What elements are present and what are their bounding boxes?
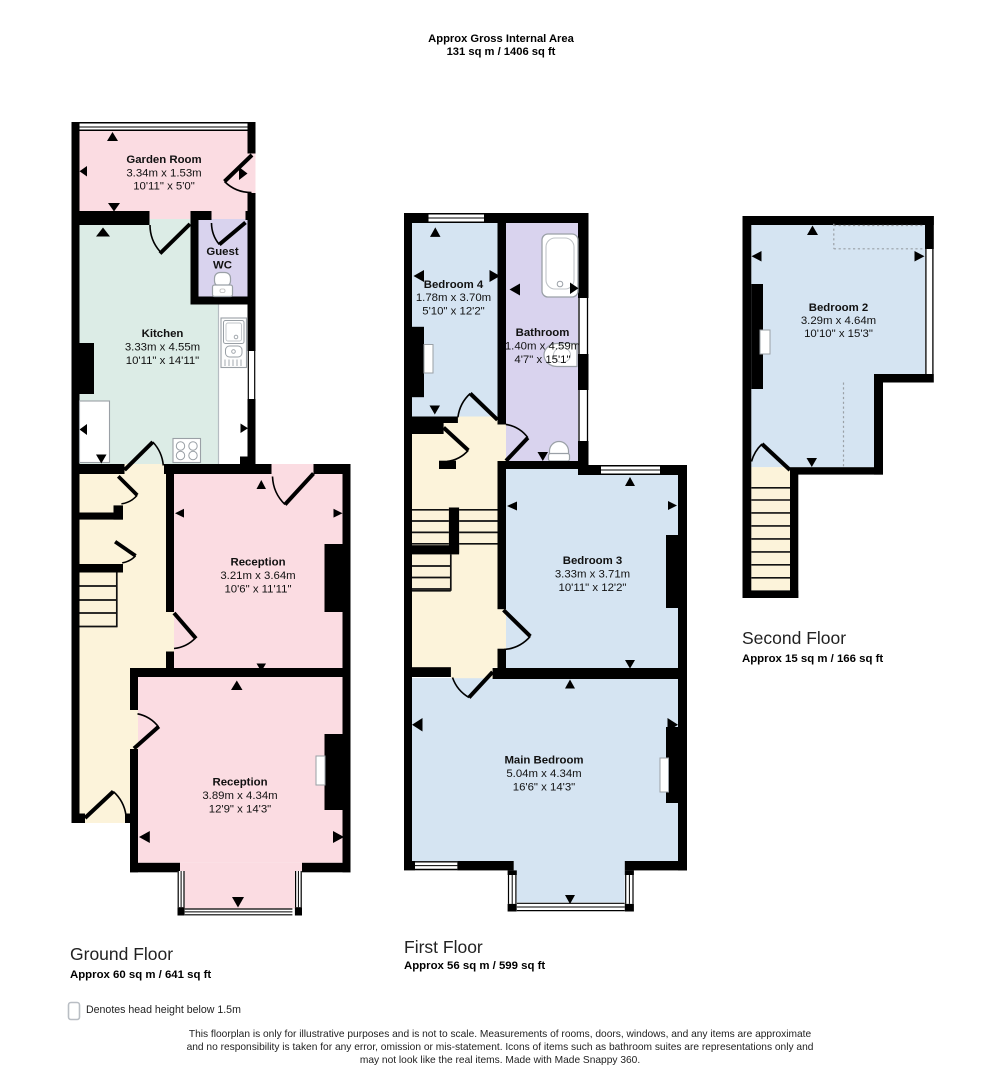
svg-text:Second Floor: Second Floor xyxy=(742,628,846,648)
svg-text:WC: WC xyxy=(213,260,232,272)
svg-text:12'9" x 14'3": 12'9" x 14'3" xyxy=(209,804,271,816)
svg-text:3.34m x 1.53m: 3.34m x 1.53m xyxy=(126,167,201,179)
svg-text:Reception: Reception xyxy=(230,557,285,569)
svg-text:5'10" x 12'2": 5'10" x 12'2" xyxy=(422,305,484,317)
svg-text:Garden Room: Garden Room xyxy=(126,154,201,166)
svg-text:Denotes head height below 1.5m: Denotes head height below 1.5m xyxy=(86,1004,241,1016)
svg-text:Bedroom 3: Bedroom 3 xyxy=(563,555,623,567)
svg-text:16'6" x 14'3": 16'6" x 14'3" xyxy=(513,782,575,794)
svg-text:Approx 15 sq m / 166 sq ft: Approx 15 sq m / 166 sq ft xyxy=(742,653,883,665)
svg-text:131 sq m / 1406 sq ft: 131 sq m / 1406 sq ft xyxy=(447,46,556,58)
svg-text:5.04m x 4.34m: 5.04m x 4.34m xyxy=(506,768,581,780)
svg-text:1.78m x 3.70m: 1.78m x 3.70m xyxy=(416,292,491,304)
svg-text:First Floor: First Floor xyxy=(404,937,483,957)
svg-text:Approx 60 sq m / 641 sq ft: Approx 60 sq m / 641 sq ft xyxy=(70,969,211,981)
svg-text:3.21m x 3.64m: 3.21m x 3.64m xyxy=(220,570,295,582)
svg-text:Approx 56 sq m / 599 sq ft: Approx 56 sq m / 599 sq ft xyxy=(404,960,545,972)
svg-text:Bathroom: Bathroom xyxy=(516,327,570,339)
svg-text:10'11" x 14'11": 10'11" x 14'11" xyxy=(126,355,199,367)
svg-text:1.40m x 4.59m: 1.40m x 4.59m xyxy=(505,341,580,353)
svg-text:10'11" x 5'0": 10'11" x 5'0" xyxy=(133,181,195,193)
svg-text:Approx Gross Internal Area: Approx Gross Internal Area xyxy=(428,33,574,45)
svg-text:3.33m x 4.55m: 3.33m x 4.55m xyxy=(125,342,200,354)
svg-text:Ground Floor: Ground Floor xyxy=(70,944,173,964)
svg-text:may not look like the real ite: may not look like the real items. Made w… xyxy=(360,1055,640,1066)
svg-text:Main Bedroom: Main Bedroom xyxy=(504,755,583,767)
svg-text:4'7" x 15'1": 4'7" x 15'1" xyxy=(514,354,570,366)
svg-text:10'10" x 15'3": 10'10" x 15'3" xyxy=(804,328,873,340)
svg-text:and no responsibility is taken: and no responsibility is taken for any e… xyxy=(187,1042,814,1053)
svg-text:Bedroom 2: Bedroom 2 xyxy=(809,302,869,314)
svg-text:3.89m x 4.34m: 3.89m x 4.34m xyxy=(202,790,277,802)
svg-text:Reception: Reception xyxy=(212,777,267,789)
svg-text:3.33m x 3.71m: 3.33m x 3.71m xyxy=(555,569,630,581)
svg-text:10'6" x 11'11": 10'6" x 11'11" xyxy=(224,584,291,596)
svg-text:3.29m x 4.64m: 3.29m x 4.64m xyxy=(801,315,876,327)
svg-text:10'11" x 12'2": 10'11" x 12'2" xyxy=(559,582,627,594)
svg-text:This floorplan is only for ill: This floorplan is only for illustrative … xyxy=(189,1029,812,1040)
svg-text:Bedroom 4: Bedroom 4 xyxy=(424,279,484,291)
svg-text:Guest: Guest xyxy=(206,246,238,258)
svg-text:Kitchen: Kitchen xyxy=(142,328,184,340)
